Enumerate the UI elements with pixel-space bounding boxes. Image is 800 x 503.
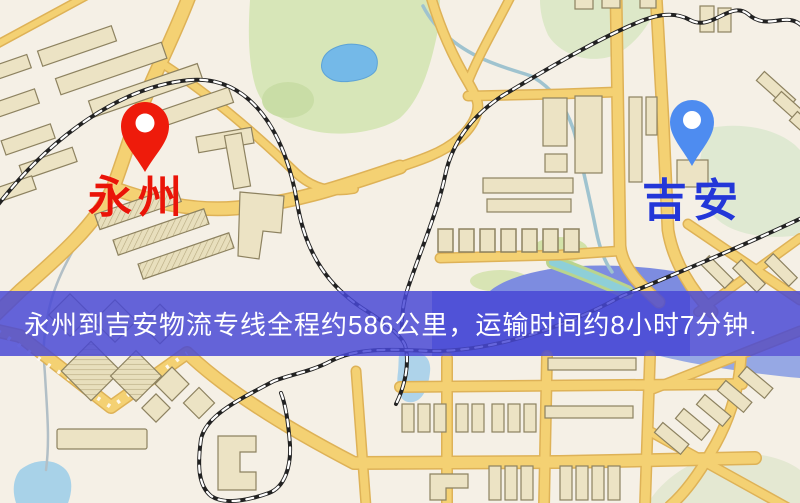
route-info-banner: 永州到吉安物流专线全程约586公里，运输时间约8小时7分钟. — [0, 291, 800, 356]
pin-hole — [136, 114, 155, 133]
map-screenshot: 永州 吉安 永州到吉安物流专线全程约586公里，运输时间约8小时7分钟. — [0, 0, 800, 503]
map[interactable] — [0, 0, 800, 503]
route-info-text: 永州到吉安物流专线全程约586公里，运输时间约8小时7分钟. — [24, 305, 758, 342]
pin-hole — [683, 111, 701, 129]
origin-city-label: 永州 — [88, 176, 188, 220]
destination-city-label: 吉安 — [642, 178, 744, 223]
